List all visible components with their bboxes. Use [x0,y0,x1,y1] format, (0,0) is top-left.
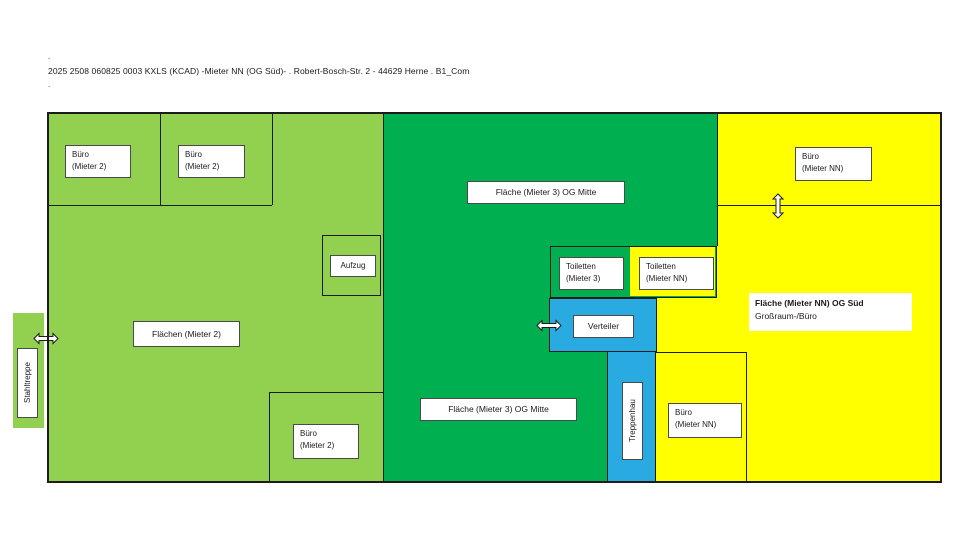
drawing-title: 2025 2508 060825 0003 KXLS (KCAD) -Miete… [48,66,469,76]
wall-buero-bottom [47,205,272,206]
label-line: Toiletten [646,261,711,273]
flaeche-m3-top-label: Fläche (Mieter 3) OG Mitte [467,181,625,204]
label-line: Fläche (Mieter NN) OG Süd [755,297,906,310]
label-line: (Mieter NN) [802,163,869,175]
label-line: Büro [185,149,242,161]
label-line: (Mieter NN) [646,273,711,285]
label-line: (Mieter 2) [185,161,242,173]
buero-m2-bottom-label: Büro (Mieter 2) [293,424,359,459]
flaeche-m3-bottom-label: Fläche (Mieter 3) OG Mitte [420,398,577,421]
aufzug-label: Aufzug [330,255,376,277]
toiletten-nn-label: Toiletten (Mieter NN) [639,257,714,290]
label-line: (Mieter NN) [675,419,739,431]
buero-nn-bottom-label: Büro (Mieter NN) [668,403,742,438]
label-line: Büro [675,407,739,419]
toiletten-m3-label: Toiletten (Mieter 3) [559,257,624,290]
wall-buero-nn-bottom [717,205,942,206]
label-line: Büro [802,151,869,163]
wall-mieter3-nn-boundary [717,112,718,246]
header-dot-below: . [48,80,50,89]
label-line: Großraum-/Büro [755,310,906,323]
label-line: Toiletten [566,261,621,273]
treppenhaus-label: Treppenhau [622,382,643,460]
label-line: Büro [72,149,128,161]
buero-m2-a-label: Büro (Mieter 2) [65,145,131,178]
wall-buero-divider-2 [272,112,273,205]
label-line: Büro [300,428,356,440]
label-line: (Mieter 2) [72,161,128,173]
buero-nn-opening-arrow-icon [771,193,785,219]
stahltreppe-label: Stahltreppe [17,348,38,418]
flaechen-m2-label: Flächen (Mieter 2) [133,321,240,347]
wall-buero-divider-1 [160,112,161,205]
header-dot-above: . [48,52,50,61]
floor-plan: Büro (Mieter 2) Büro (Mieter 2) Fläche (… [47,112,942,483]
verteiler-opening-arrow-icon [536,319,562,332]
wall-mieter2-mieter3-boundary [383,112,384,483]
label-line: (Mieter 2) [300,440,356,452]
stahltreppe-opening-arrow-icon [33,332,59,345]
verteiler-label: Verteiler [573,315,634,338]
buero-m2-b-label: Büro (Mieter 2) [178,145,245,178]
flaeche-nn-sued-label: Fläche (Mieter NN) OG Süd Großraum-/Büro [749,293,912,331]
cad-floorplan-page: { "colors": { "light_green": "#92D050", … [0,0,960,540]
buero-nn-top-label: Büro (Mieter NN) [795,147,872,181]
label-line: (Mieter 3) [566,273,621,285]
